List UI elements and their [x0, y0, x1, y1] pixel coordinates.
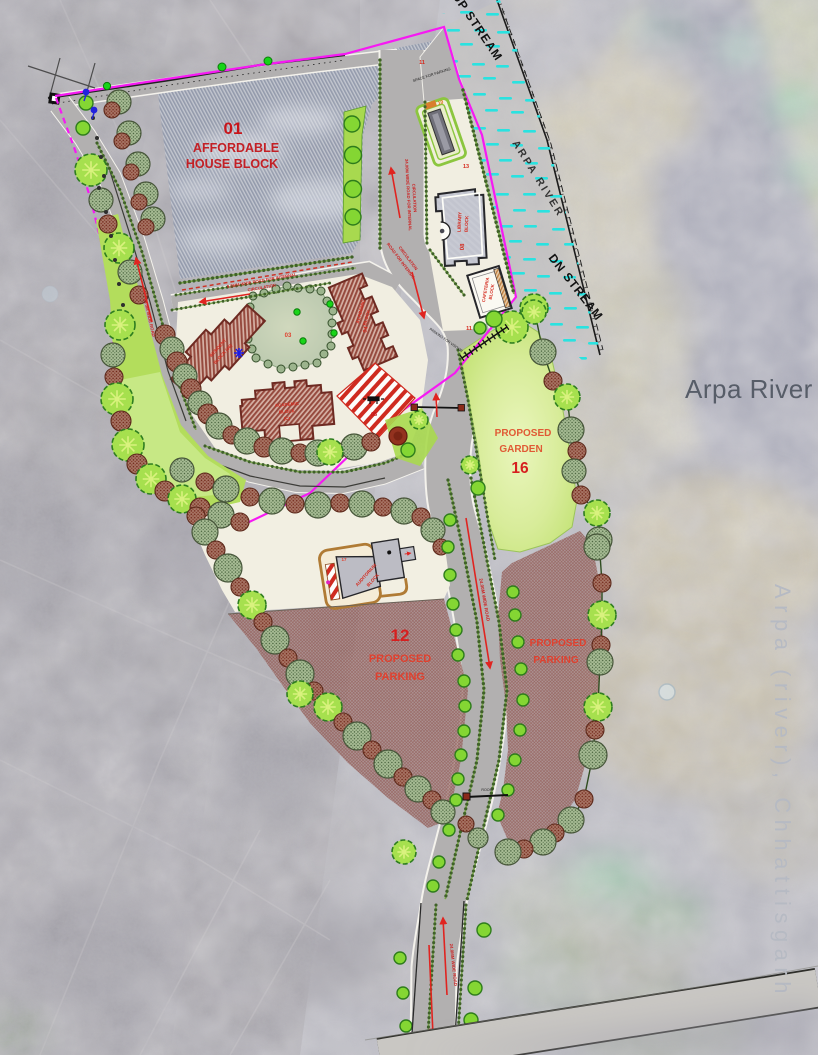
- svg-text:13: 13: [463, 164, 469, 170]
- svg-text:Arpa (river), Chhattisgarh: Arpa (river), Chhattisgarh: [770, 584, 795, 1000]
- svg-text:08: 08: [460, 243, 466, 251]
- svg-text:AFFORDABLE: AFFORDABLE: [193, 141, 279, 155]
- svg-text:03: 03: [285, 333, 292, 339]
- svg-text:05: 05: [371, 412, 377, 418]
- svg-text:(C): (C): [284, 416, 291, 422]
- svg-text:PARKING: PARKING: [533, 655, 579, 666]
- svg-text:PROPOSED: PROPOSED: [369, 653, 431, 665]
- svg-text:17: 17: [341, 557, 347, 562]
- svg-text:BLOCK: BLOCK: [464, 215, 470, 232]
- svg-text:PROPOSED: PROPOSED: [530, 638, 587, 649]
- svg-text:11: 11: [419, 60, 425, 66]
- svg-text:Arpa River: Arpa River: [685, 374, 813, 404]
- svg-text:16: 16: [511, 460, 529, 477]
- svg-text:LIBRARY: LIBRARY: [456, 212, 462, 232]
- svg-text:ROOM: ROOM: [481, 788, 492, 792]
- svg-text:PARKING: PARKING: [375, 671, 425, 683]
- svg-text:GARDEN: GARDEN: [499, 444, 542, 455]
- svg-text:01: 01: [224, 119, 243, 138]
- svg-text:12: 12: [391, 626, 410, 645]
- svg-text:HOUSE BLOCK: HOUSE BLOCK: [186, 157, 278, 171]
- svg-text:11: 11: [466, 326, 472, 332]
- svg-text:PROPOSED: PROPOSED: [495, 428, 552, 439]
